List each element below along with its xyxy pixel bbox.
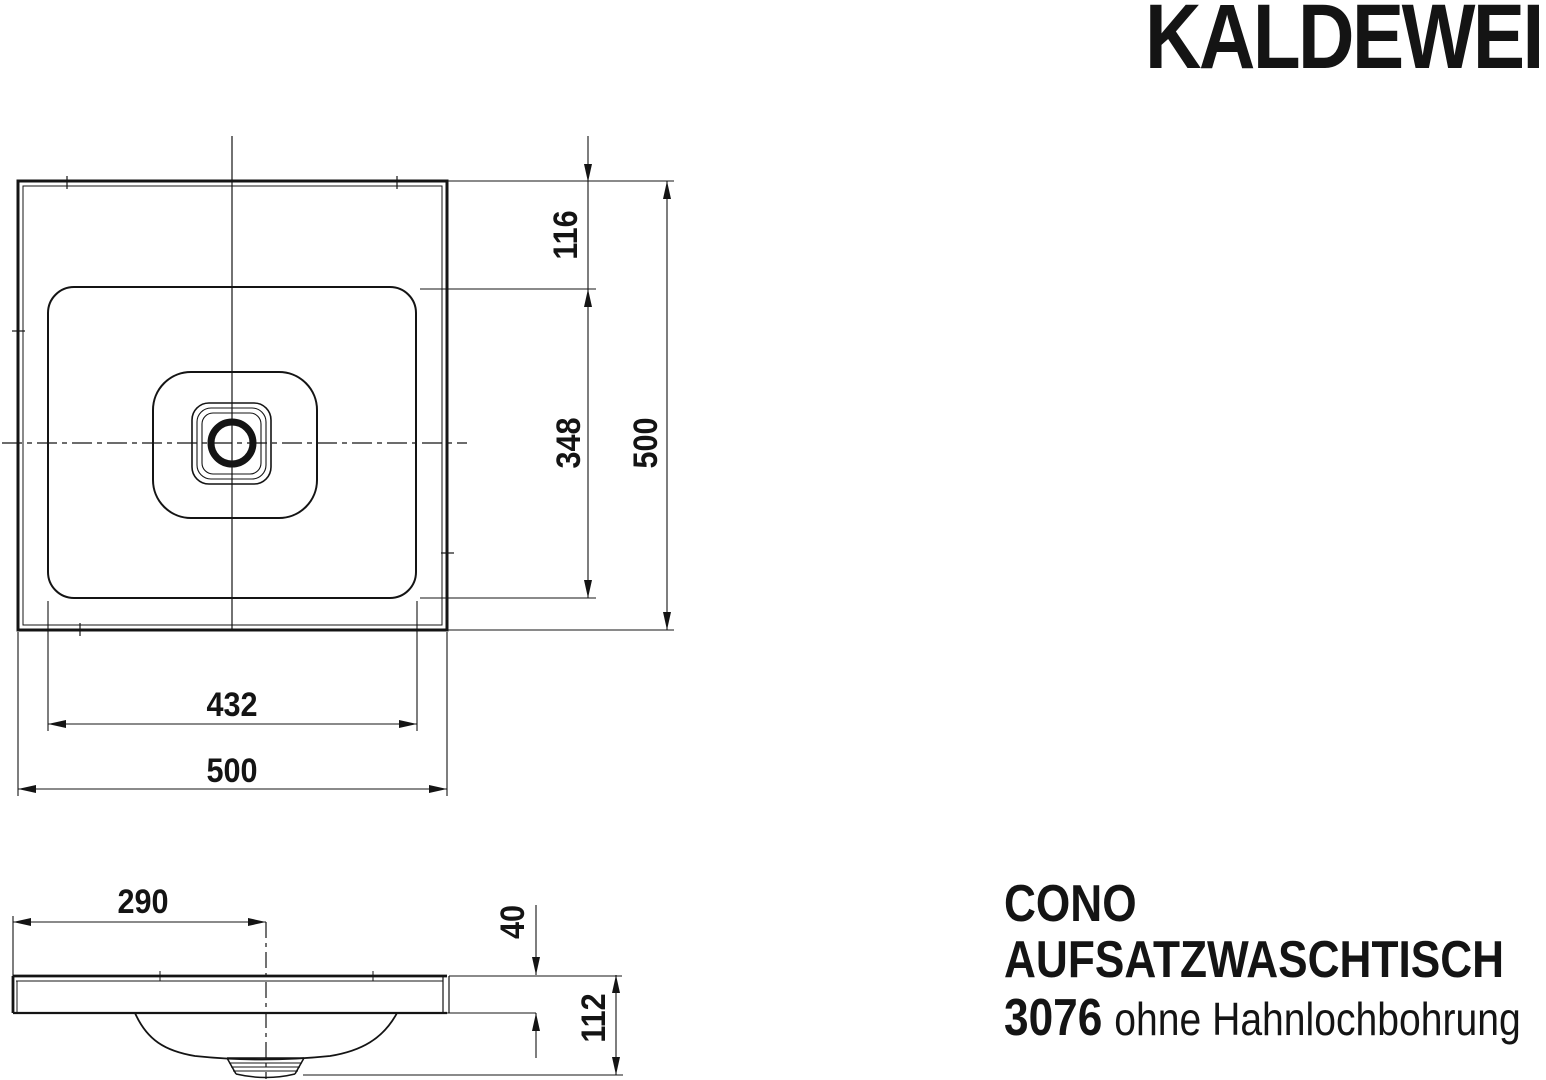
product-series: CONO <box>1004 878 1137 930</box>
edge-tick-marks <box>12 176 454 636</box>
product-model-line: 3076ohne Hahnlochbohrung <box>1004 992 1521 1044</box>
product-type: AUFSATZWASCHTISCH <box>1004 934 1504 986</box>
product-variant-note: ohne Hahnlochbohrung <box>1114 993 1521 1045</box>
dim-label-500-vertical: 500 <box>629 417 663 468</box>
spec-sheet: 116 348 500 432 500 290 40 112 KALDEWEI … <box>0 0 1546 1080</box>
technical-drawing <box>0 0 1546 1080</box>
dim-label-116: 116 <box>549 210 583 259</box>
plan-view <box>2 136 467 636</box>
section-view <box>13 971 622 1078</box>
dim-label-290: 290 <box>117 885 168 919</box>
product-model-number: 3076 <box>1004 989 1102 1047</box>
dim-label-432: 432 <box>206 688 257 722</box>
dim-label-40: 40 <box>496 905 530 939</box>
dimension-arrowheads <box>13 164 671 1075</box>
section-slab <box>13 971 622 1013</box>
dim-label-348: 348 <box>552 417 586 468</box>
dim-label-500-horizontal: 500 <box>206 754 257 788</box>
dim-label-112: 112 <box>577 993 611 1042</box>
drain-recess-outline <box>153 372 317 518</box>
brand-logo: KALDEWEI <box>1145 0 1542 83</box>
